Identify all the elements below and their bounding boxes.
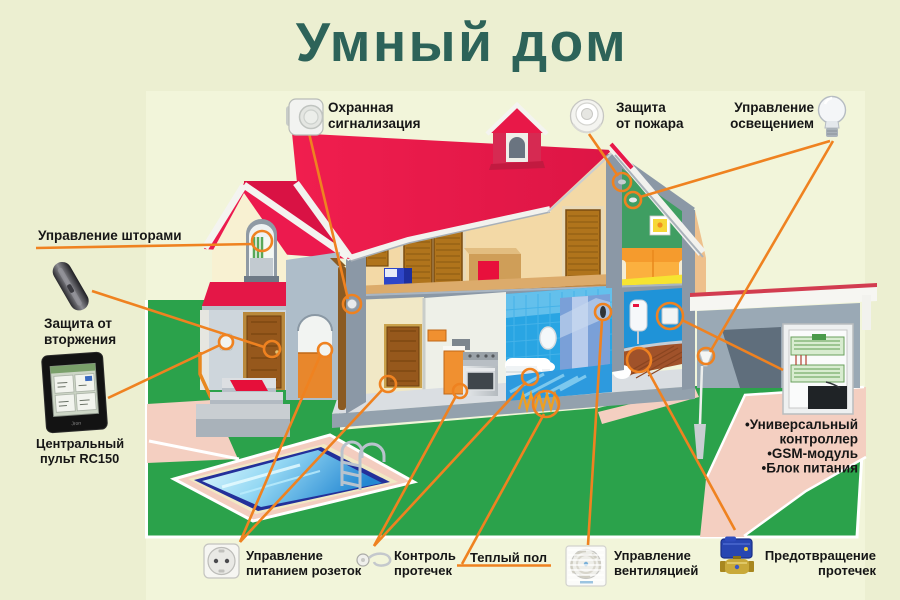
svg-text:пульт RC150: пульт RC150 [40,451,119,466]
svg-text:освещением: освещением [730,116,814,131]
svg-text:контроллер: контроллер [780,432,858,447]
svg-text:Теплый пол: Теплый пол [470,550,547,565]
svg-text:вторжения: вторжения [44,332,116,347]
svg-text:Управление шторами: Управление шторами [38,228,182,243]
svg-text:Управление: Управление [246,548,323,563]
svg-text:Охранная: Охранная [328,100,393,115]
svg-text:Управление: Управление [734,100,814,115]
svg-text:Умный дом: Умный дом [296,11,628,73]
svg-text:Предотвращение: Предотвращение [765,548,876,563]
svg-text:сигнализация: сигнализация [328,116,420,131]
svg-text:от пожара: от пожара [616,116,684,131]
svg-text:Защита: Защита [616,100,666,115]
svg-text:Jron: Jron [71,421,81,428]
svg-text:вентиляцией: вентиляцией [614,563,698,578]
svg-text:Защита от: Защита от [44,316,112,331]
svg-text:протечек: протечек [818,563,876,578]
svg-text:•GSM-модуль: •GSM-модуль [767,446,858,461]
svg-text:Центральный: Центральный [36,436,124,451]
svg-text:питанием розеток: питанием розеток [246,563,362,578]
svg-text:Контроль: Контроль [394,548,456,563]
svg-text:•Блок питания: •Блок питания [762,461,858,476]
svg-text:протечек: протечек [394,563,452,578]
svg-text:•Универсальный: •Универсальный [745,417,858,432]
svg-text:Управление: Управление [614,548,691,563]
